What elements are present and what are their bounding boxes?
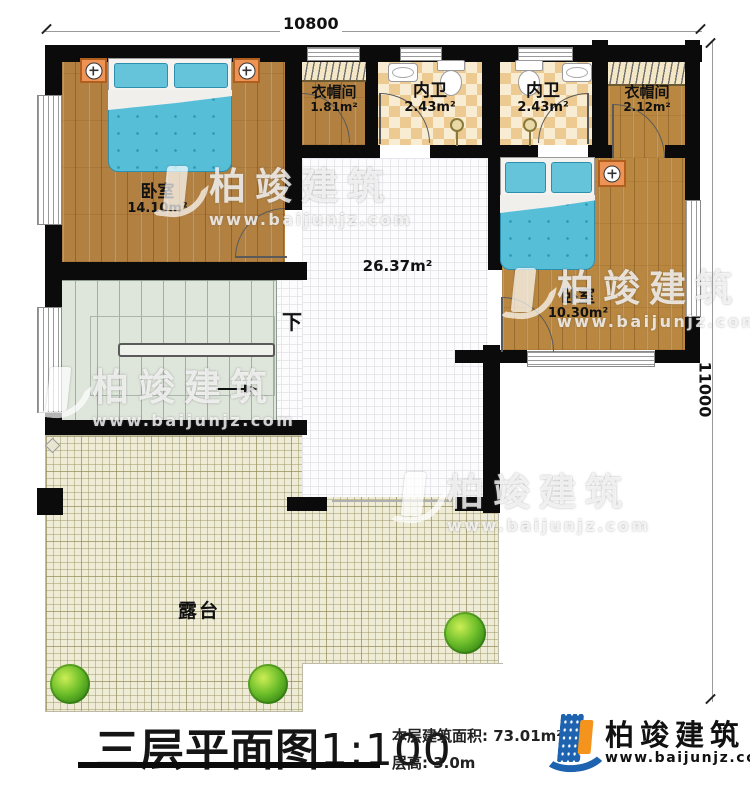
wall-right-b bbox=[685, 317, 700, 363]
brand-name: 柏竣建筑 bbox=[605, 720, 750, 750]
terrace-column bbox=[37, 488, 63, 515]
floor-area-label: 本层建筑面积: bbox=[392, 727, 488, 745]
pillow bbox=[114, 63, 168, 88]
hall-floor-strip bbox=[273, 280, 302, 420]
window-top-2 bbox=[400, 47, 442, 61]
shower-stem bbox=[529, 131, 531, 146]
lamp-icon bbox=[238, 62, 255, 79]
brand-logo: 柏竣建筑 www.baijunjz.com bbox=[543, 714, 750, 772]
nightstand bbox=[598, 160, 626, 187]
title-underline bbox=[78, 762, 380, 768]
window-left-2 bbox=[37, 307, 62, 413]
door-leaf bbox=[501, 297, 503, 352]
room-label-bath-left: 内卫 2.43m² bbox=[388, 82, 472, 116]
room-name: 内卫 bbox=[500, 82, 586, 101]
hall-floor bbox=[302, 158, 488, 497]
plant bbox=[444, 612, 486, 654]
terrace-label: 露台 bbox=[178, 596, 220, 623]
terrace-notch-cover bbox=[302, 663, 503, 712]
room-name: 卧室 bbox=[508, 288, 648, 307]
wall-bedroom-left-bottom bbox=[45, 262, 307, 280]
nightstand bbox=[80, 58, 107, 83]
shower-head-icon bbox=[523, 118, 537, 132]
door-leaf bbox=[235, 256, 287, 258]
pillow bbox=[505, 162, 546, 193]
stair-direction-arrow bbox=[244, 384, 258, 394]
terrace-door-threshold bbox=[332, 500, 452, 502]
lamp-icon bbox=[85, 62, 102, 79]
room-name: 卧室 bbox=[95, 183, 220, 202]
bed-left-headboard bbox=[108, 58, 232, 92]
plant bbox=[248, 664, 288, 704]
wall-left-a bbox=[45, 62, 62, 95]
dimension-right-label: 11000 bbox=[696, 359, 715, 421]
shower-stem bbox=[456, 131, 458, 146]
lamp-icon bbox=[604, 165, 621, 182]
wardrobe bbox=[302, 62, 366, 82]
wall-right-a bbox=[685, 40, 700, 200]
floor-height-label: 层高: bbox=[392, 754, 428, 772]
room-label-bath-right: 内卫 2.43m² bbox=[500, 82, 586, 116]
wall-toprow-bottom-1 bbox=[302, 145, 380, 158]
room-name: 衣帽间 bbox=[606, 84, 688, 101]
room-label-bedroom-right: 卧室 10.30m² bbox=[508, 288, 648, 322]
floor-height-value: 3.0m bbox=[433, 754, 475, 772]
wall-bedroom-right-left-b bbox=[483, 345, 500, 513]
window-top-3 bbox=[518, 47, 573, 61]
wall-bedroom-right-bottom-2 bbox=[655, 350, 687, 363]
floor-plan-canvas: 卧室 14.10m² 衣帽间 1.81m² 内卫 2.43m² 内卫 2.43m… bbox=[0, 0, 750, 792]
bed-right-headboard bbox=[500, 157, 595, 197]
dimension-tick bbox=[705, 694, 716, 705]
dimension-tick bbox=[695, 24, 706, 35]
door-leaf bbox=[379, 93, 381, 144]
floor-area-info: 本层建筑面积: 73.01m² bbox=[392, 725, 563, 746]
wall-bath-divider bbox=[482, 62, 500, 145]
plant bbox=[50, 664, 90, 704]
wall-terrace-top bbox=[45, 420, 307, 435]
window-bedroom-right-bottom bbox=[527, 351, 655, 367]
room-area: 1.81m² bbox=[300, 101, 368, 114]
dimension-line-top bbox=[45, 31, 702, 32]
room-area: 10.30m² bbox=[508, 307, 648, 322]
pillow bbox=[174, 63, 228, 88]
room-area: 2.43m² bbox=[500, 101, 586, 116]
brand-logo-icon bbox=[543, 714, 597, 772]
nightstand bbox=[233, 58, 260, 83]
hall-area-label: 26.37m² bbox=[340, 258, 455, 275]
door-leaf bbox=[587, 93, 589, 144]
stair-handrail bbox=[118, 343, 275, 357]
wall-hall-bottom-right bbox=[455, 497, 497, 511]
dimension-tick bbox=[705, 38, 716, 49]
plan-title-text: 三层平面图 bbox=[95, 725, 320, 776]
window-left-1 bbox=[37, 95, 62, 225]
stair-direction-arrow-tail bbox=[216, 388, 246, 390]
sink bbox=[388, 63, 418, 82]
room-label-closet-right: 衣帽间 2.12m² bbox=[606, 84, 688, 114]
room-label-closet-left: 衣帽间 1.81m² bbox=[300, 84, 368, 114]
room-label-bedroom-left: 卧室 14.10m² bbox=[95, 183, 220, 217]
shower-head-icon bbox=[450, 118, 464, 132]
room-area: 14.10m² bbox=[95, 202, 220, 217]
brand-url: www.baijunjz.com bbox=[605, 750, 750, 766]
wall-hall-bottom-left bbox=[287, 497, 327, 511]
sink bbox=[562, 63, 592, 82]
window-top-1 bbox=[307, 47, 360, 61]
dimension-tick bbox=[41, 24, 52, 35]
room-name: 衣帽间 bbox=[300, 84, 368, 101]
window-right bbox=[685, 200, 701, 317]
floor-height-info: 层高: 3.0m bbox=[392, 752, 475, 773]
stairs-direction-label: 下 bbox=[282, 306, 302, 335]
room-area: 2.12m² bbox=[606, 101, 688, 114]
room-name: 内卫 bbox=[388, 82, 472, 101]
pillow bbox=[551, 162, 592, 193]
room-area: 2.43m² bbox=[388, 101, 472, 116]
dimension-top-label: 10800 bbox=[280, 14, 342, 33]
